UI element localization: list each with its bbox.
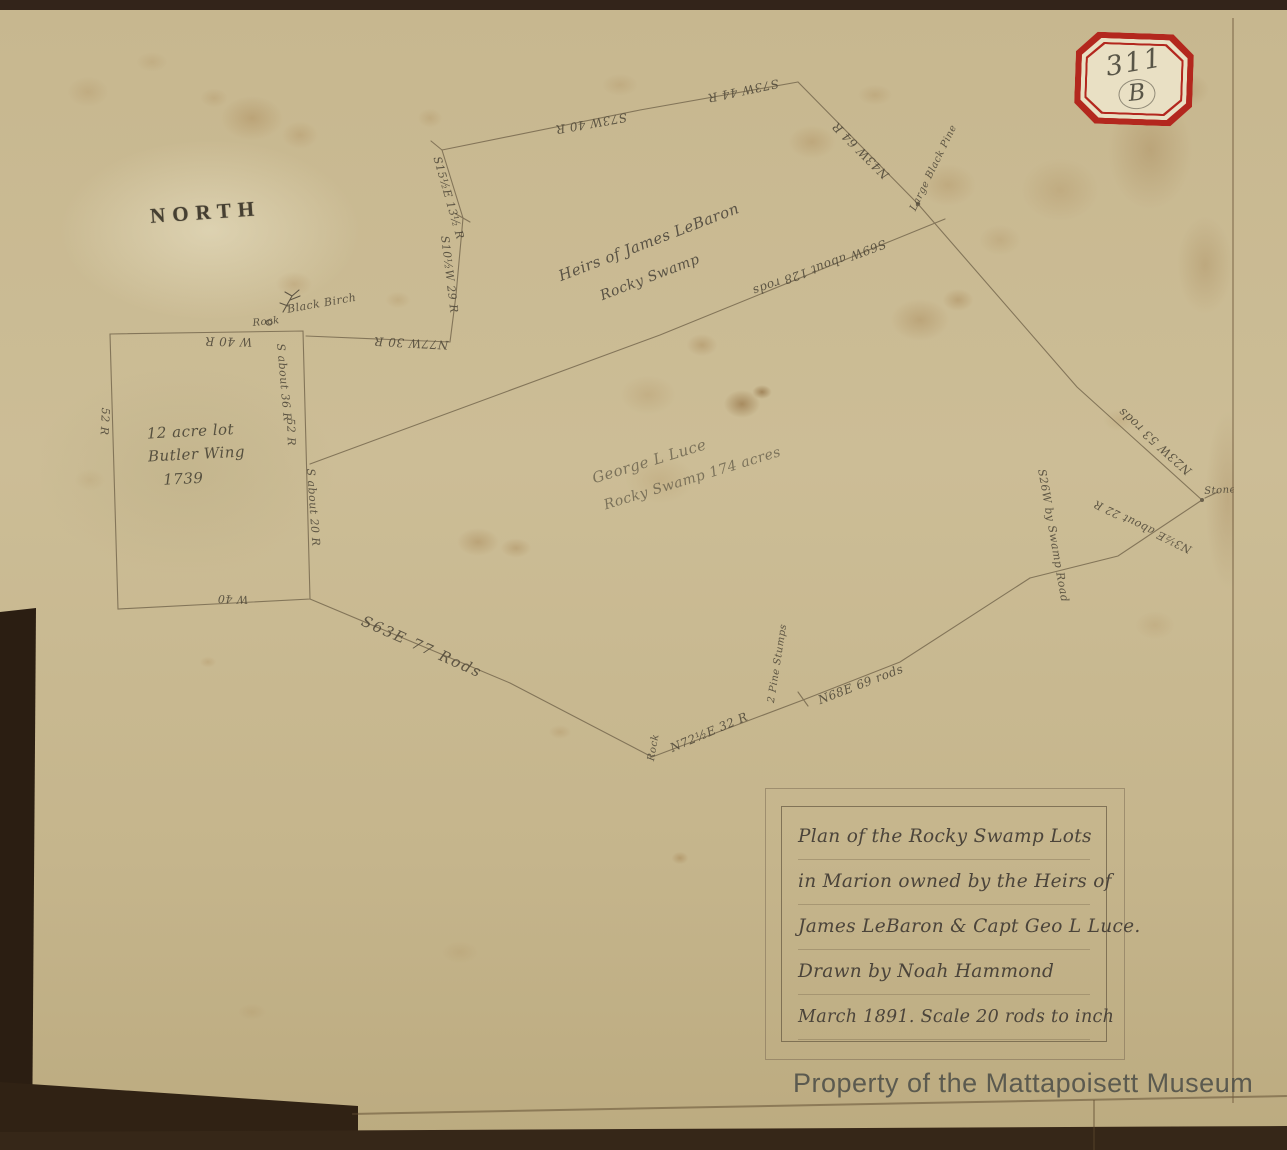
paper-crease (1232, 18, 1234, 1103)
title-line: March 1891. Scale 20 rods to inch (798, 995, 1090, 1040)
museum-watermark: Property of the Mattapoisett Museum (793, 1068, 1253, 1099)
bearing-label: W 40 (217, 592, 248, 606)
scanned-map-photo: S73W 40 R S73W 44 R S15½E 13½ R S10½W 29… (0, 0, 1287, 1150)
title-line: Plan of the Rocky Swamp Lots (798, 815, 1090, 860)
stone-mark (1200, 498, 1204, 502)
catalog-stamp: 311 B (1073, 31, 1194, 127)
title-box-inner: Plan of the Rocky Swamp Lots in Marion o… (781, 806, 1107, 1042)
title-line: James LeBaron & Capt Geo L Luce. (798, 905, 1090, 950)
title-line: in Marion owned by the Heirs of (798, 860, 1090, 905)
corner-tick (431, 141, 442, 150)
map-sheet: S73W 40 R S73W 44 R S15½E 13½ R S10½W 29… (0, 0, 1287, 1150)
title-line: Drawn by Noah Hammond (798, 950, 1090, 995)
butler-lot-label: 12 acre lot Butler Wing 1739 (146, 418, 247, 493)
bearing-label: 52 R (284, 418, 298, 446)
bearing-label: 52 R (98, 407, 112, 435)
title-box: Plan of the Rocky Swamp Lots in Marion o… (765, 788, 1125, 1060)
bearing-label: W 40 R (205, 334, 253, 349)
paper-crease (1093, 1100, 1095, 1150)
